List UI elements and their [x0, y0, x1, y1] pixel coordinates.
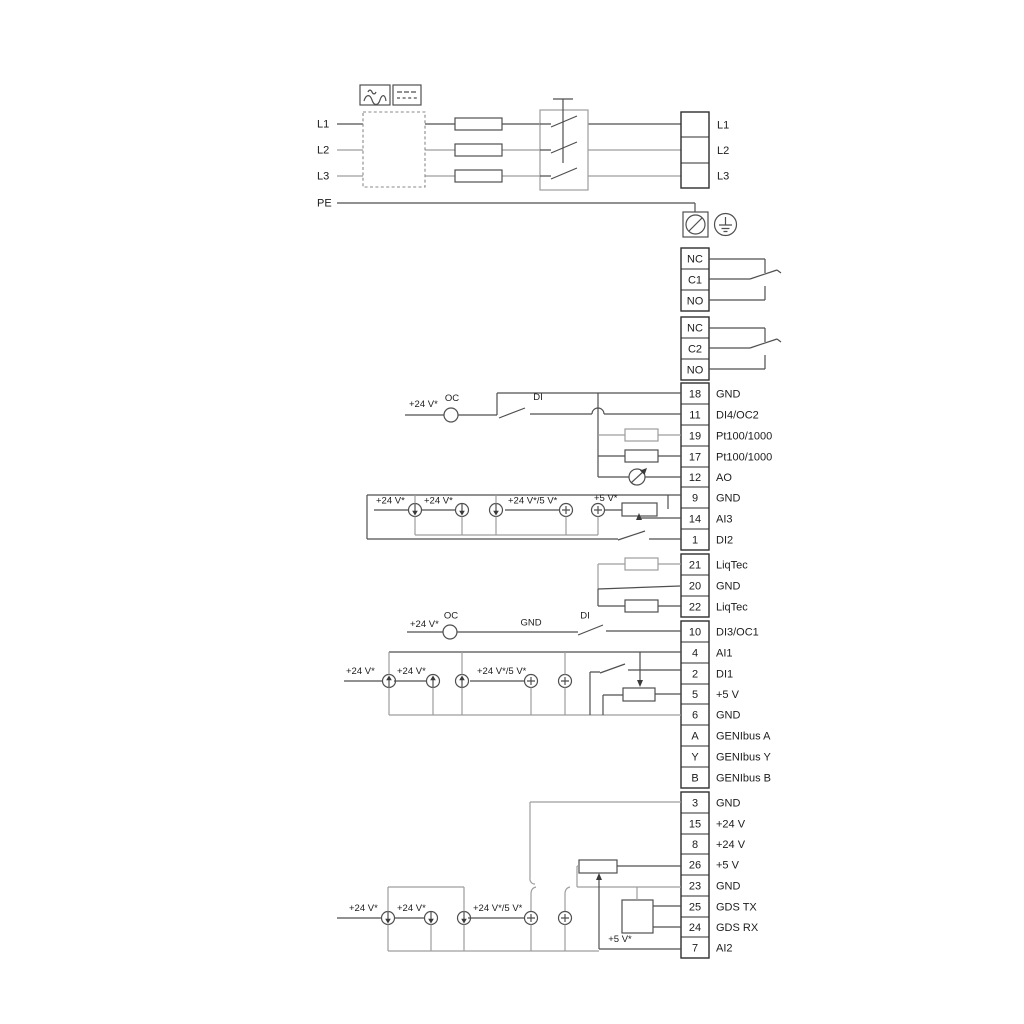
dc-symbol-icon	[393, 85, 421, 105]
terminal-12-label: AO	[716, 472, 732, 484]
terminal-3-label: GND	[716, 798, 741, 810]
plus24v-label: +24 V*	[346, 666, 375, 677]
terminal-7-label: AI2	[716, 943, 733, 955]
terminal-21-label: LiqTec	[716, 560, 748, 572]
power-input-section: L1 L2 L3 PE	[317, 85, 737, 237]
plus24v-label: +24 V*	[424, 496, 453, 507]
liqtec-sensor-2	[625, 600, 658, 612]
terminal-15-label: +24 V	[716, 819, 746, 831]
input-label-l3: L3	[317, 171, 329, 183]
main-switch	[540, 99, 588, 190]
plus24v-5v-label: +24 V*/5 V*	[508, 496, 558, 507]
block-c-wiring: +24 V* OC GND DI +24 V* +24 V* +24 V*/5 …	[344, 611, 681, 716]
terminal-9-label: GND	[716, 493, 741, 505]
terminal-10: 10	[689, 627, 701, 639]
relay2-section: NC C2 NO	[681, 317, 781, 380]
terminal-4: 4	[692, 648, 698, 660]
plus24v-label: +24 V*	[397, 903, 426, 914]
power-wires	[337, 124, 695, 212]
ac-symbol-icon	[360, 85, 390, 105]
relay1-section: NC C1 NO	[681, 248, 781, 311]
terminal-7: 7	[692, 943, 698, 955]
terminal-5-label: +5 V	[716, 689, 740, 701]
di-label: DI	[533, 392, 543, 403]
plus24v-5v-label: +24 V*/5 V*	[473, 903, 523, 914]
di4-switch	[499, 408, 525, 418]
open-collector-icon	[443, 625, 457, 639]
pt100-sensor-2	[625, 450, 658, 462]
plus24v-label: +24 V*	[397, 666, 426, 677]
relay2-no: NO	[687, 365, 704, 377]
terminal-2: 2	[692, 669, 698, 681]
terminal-genibus-y-label: GENIbus Y	[716, 752, 771, 764]
terminal-24-label: GDS RX	[716, 922, 759, 934]
terminal-26-label: +5 V	[716, 860, 740, 872]
terminal-26: 26	[689, 860, 701, 872]
ai3-potentiometer	[622, 503, 657, 516]
terminal-11: 11	[689, 410, 700, 422]
pt100-sensor-1	[625, 429, 658, 441]
terminal-genibus-b: B	[691, 773, 698, 785]
terminal-8-label: +24 V	[716, 839, 746, 851]
plus24v-label: +24 V*	[410, 619, 439, 630]
relay1-no: NO	[687, 296, 704, 308]
terminal-6: 6	[692, 710, 698, 722]
ai1-potentiometer	[623, 688, 655, 701]
di3-switch	[578, 625, 603, 635]
block-b-wiring	[598, 558, 681, 612]
plus24v-5v-label: +24 V*/5 V*	[477, 666, 527, 677]
terminal-block-a: 18 GND 11 DI4/OC2 19 Pt100/1000 17 Pt100…	[681, 383, 772, 550]
terminal-24: 24	[689, 922, 701, 934]
terminal-25: 25	[689, 902, 701, 914]
terminal-5: 5	[692, 689, 698, 701]
terminal-1-label: DI2	[716, 535, 733, 547]
terminal-9: 9	[692, 493, 698, 505]
di-label: DI	[580, 611, 590, 622]
terminal-genibus-a: A	[691, 731, 699, 743]
earth-ground-icon	[715, 214, 737, 236]
terminal-14: 14	[689, 514, 701, 526]
block-d-wiring: +24 V* +24 V* +24 V*/5 V* +5 V*	[337, 802, 681, 951]
mains-terminal-block	[681, 112, 709, 188]
terminal-3: 3	[692, 798, 698, 810]
oc-label: OC	[445, 393, 459, 404]
terminal-15: 15	[689, 819, 701, 831]
plus24v-label: +24 V*	[349, 903, 378, 914]
relay2-c2: C2	[688, 344, 702, 356]
ai2-potentiometer	[579, 860, 617, 873]
terminal-14-label: AI3	[716, 514, 733, 526]
terminal-8: 8	[692, 839, 698, 851]
terminal-21: 21	[689, 560, 701, 572]
open-collector-icon	[444, 408, 458, 422]
terminal-18-label: GND	[716, 389, 741, 401]
terminal-20: 20	[689, 581, 701, 593]
relay1-contact	[709, 259, 781, 300]
relay1-nc: NC	[687, 254, 703, 266]
plus5v-label: +5 V*	[608, 934, 632, 945]
terminal-17-label: Pt100/1000	[716, 452, 772, 464]
terminal-19: 19	[689, 431, 701, 443]
terminal-23: 23	[689, 881, 701, 893]
fuse-l1	[455, 118, 502, 130]
terminal-1: 1	[692, 535, 698, 547]
terminal-18: 18	[689, 389, 701, 401]
terminal-17: 17	[689, 452, 701, 464]
terminal-19-label: Pt100/1000	[716, 431, 772, 443]
terminal-2-label: DI1	[716, 669, 733, 681]
terminal-genibus-a-label: GENIbus A	[716, 731, 771, 743]
input-label-l1: L1	[317, 119, 329, 131]
fuse-l2	[455, 144, 502, 156]
gnd-label: GND	[520, 618, 541, 629]
terminal-block-c: 10 DI3/OC1 4 AI1 2 DI1 5 +5 V 6 GND A GE…	[681, 621, 771, 788]
terminal-6-label: GND	[716, 710, 741, 722]
terminal-12: 12	[689, 472, 701, 484]
plus5v-label: +5 V*	[594, 493, 618, 504]
block-a-wiring: +24 V* OC DI +24 V* +24 V* +24 V*/5 V* +…	[367, 392, 681, 540]
terminal-10-label: DI3/OC1	[716, 627, 759, 639]
terminal-22-label: LiqTec	[716, 602, 748, 614]
terminal-11-label: DI4/OC2	[716, 410, 759, 422]
liqtec-sensor-1	[625, 558, 658, 570]
pe-screw-terminal-icon	[683, 212, 708, 237]
fuse-l3	[455, 170, 502, 182]
oc-label: OC	[444, 611, 458, 622]
input-label-pe: PE	[317, 198, 332, 210]
terminal-23-label: GND	[716, 881, 741, 893]
di1-switch	[600, 664, 625, 673]
terminal-25-label: GDS TX	[716, 902, 757, 914]
plus24v-label: +24 V*	[409, 399, 438, 410]
terminal-block-b: 21 LiqTec 20 GND 22 LiqTec	[681, 554, 748, 617]
terminal-22: 22	[689, 602, 701, 614]
terminal-block-d: 3 GND 15 +24 V 8 +24 V 26 +5 V 23 GND 25…	[681, 792, 759, 958]
relay2-contact	[709, 328, 781, 369]
output-label-l1: L1	[717, 120, 729, 132]
wiring-diagram: L1 L2 L3 PE	[0, 0, 1024, 1024]
terminal-genibus-y: Y	[691, 752, 699, 764]
output-label-l2: L2	[717, 145, 729, 157]
analog-output-meter-icon	[629, 468, 647, 485]
di2-switch	[618, 531, 645, 540]
output-label-l3: L3	[717, 171, 729, 183]
relay2-nc: NC	[687, 323, 703, 335]
terminal-4-label: AI1	[716, 648, 733, 660]
relay1-c1: C1	[688, 275, 702, 287]
plus24v-label: +24 V*	[376, 496, 405, 507]
terminal-20-label: GND	[716, 581, 741, 593]
gds-sensor-box	[622, 900, 653, 933]
input-label-l2: L2	[317, 145, 329, 157]
emc-filter-box	[363, 112, 425, 187]
terminal-genibus-b-label: GENIbus B	[716, 773, 771, 785]
